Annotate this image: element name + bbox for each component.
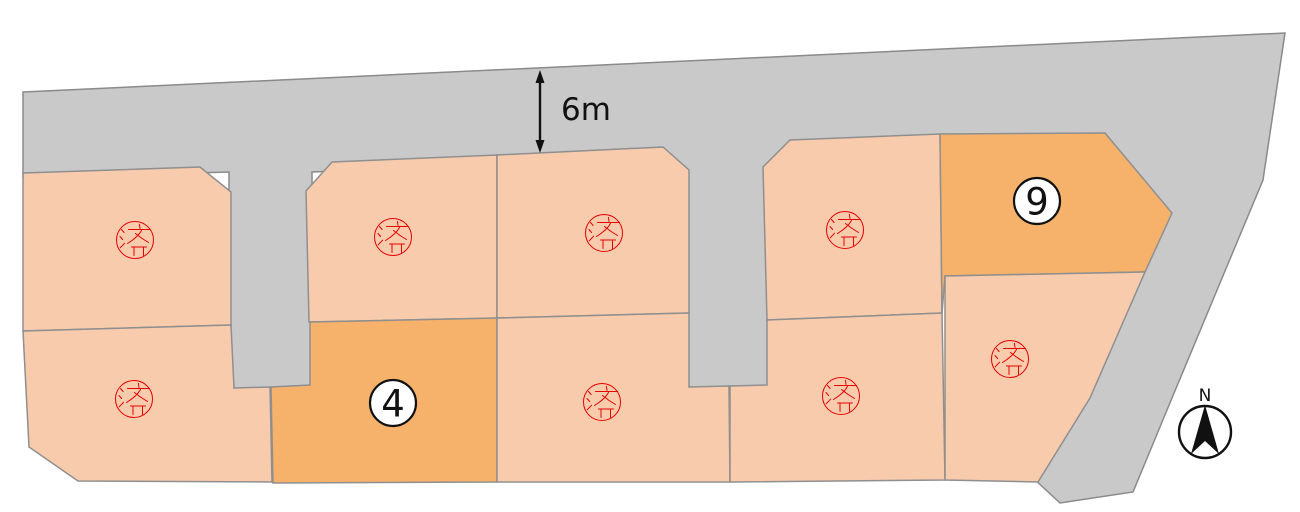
compass-north-icon: N <box>1179 386 1231 458</box>
lot-map-canvas: 済 済 済 済 済 済 済 済 9 4 6m N <box>0 0 1300 512</box>
lot-number-badge: 9 <box>1014 178 1060 224</box>
lot-subdivision-map: 済 済 済 済 済 済 済 済 9 4 6m N <box>0 0 1300 512</box>
lot-polygon-top-3 <box>497 147 689 318</box>
lot-number-badge: 4 <box>370 380 416 426</box>
road-width-label: 6m <box>561 92 611 128</box>
lot-number: 9 <box>1025 180 1049 223</box>
lot-polygon-top-4 <box>763 134 942 320</box>
lot-number: 4 <box>381 382 405 425</box>
lot-polygon-top-1 <box>23 167 231 331</box>
compass-north-label: N <box>1199 386 1212 406</box>
lot-polygon-top-2 <box>306 155 497 322</box>
